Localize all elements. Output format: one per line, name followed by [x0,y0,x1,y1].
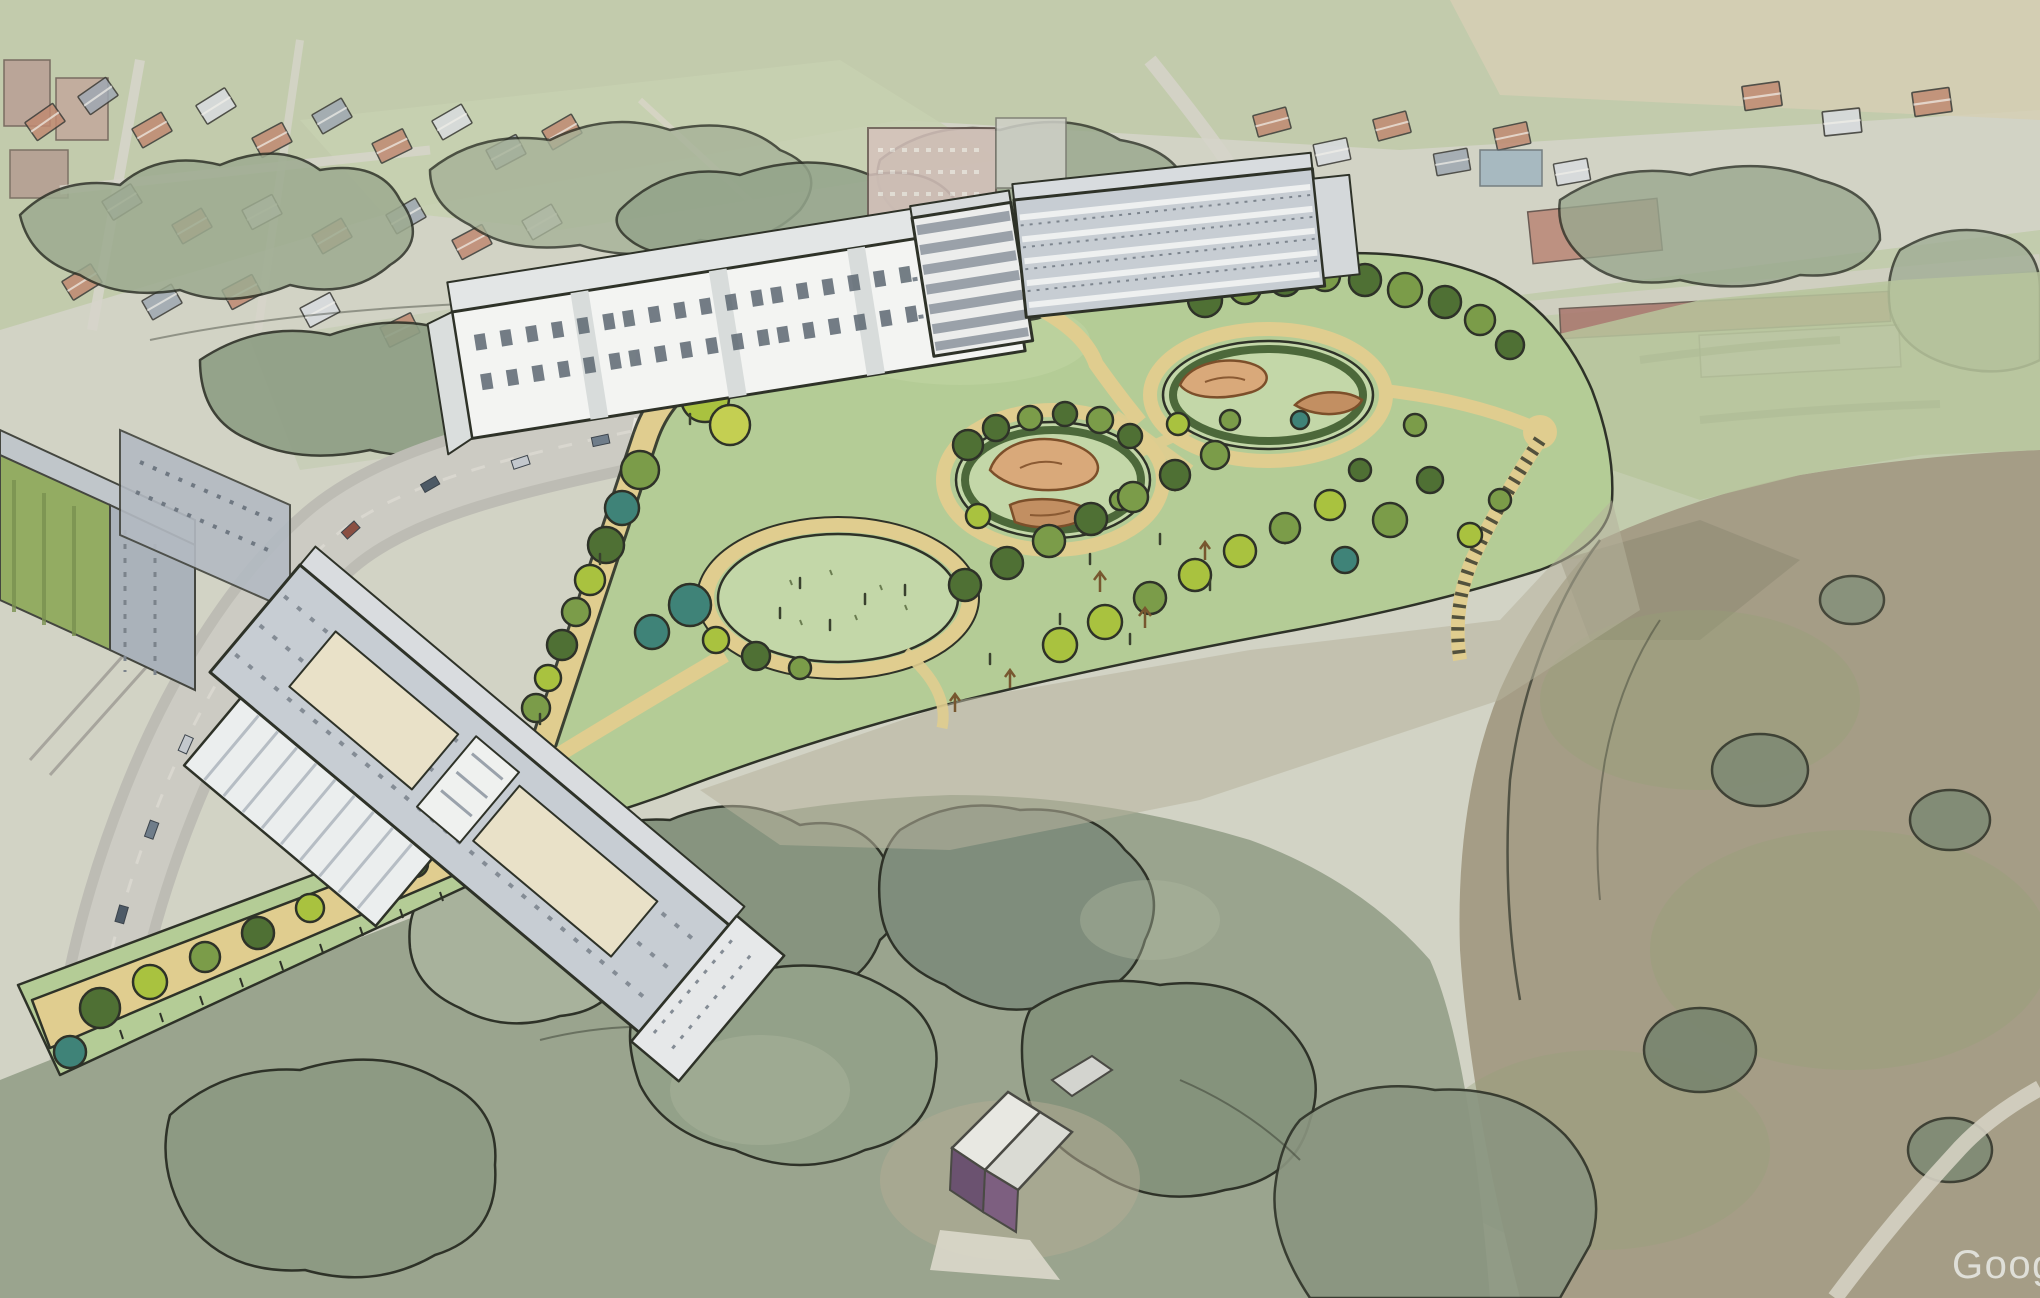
tree [535,665,561,691]
tree [1118,482,1148,512]
tree [54,1036,86,1068]
bush [1644,1008,1756,1092]
tree-mass [166,1060,496,1278]
blue-roof-building [1480,150,1542,186]
tree [1033,525,1065,557]
tree [1270,513,1300,543]
clearing [1080,880,1220,960]
bush [1712,734,1808,806]
tree [983,415,1009,441]
bush [1820,576,1884,624]
tree [703,627,729,653]
tree [588,527,624,563]
tree [1496,331,1524,359]
tree [635,615,669,649]
tree [1458,523,1482,547]
tree [1043,628,1077,662]
tree [190,942,220,972]
tree [1160,460,1190,490]
tree [562,598,590,626]
tree [1201,441,1229,469]
tree [1291,411,1309,429]
tree [1224,535,1256,567]
tree [1315,490,1345,520]
tree [547,630,577,660]
tree [1465,305,1495,335]
tree [133,965,167,999]
tree [1118,424,1142,448]
aerial-render: Google [0,0,2040,1298]
tree [966,504,990,528]
tree [1489,489,1511,511]
tree [1053,402,1077,426]
tree [949,569,981,601]
tree [1087,407,1113,433]
tree [1018,406,1042,430]
tree [953,430,983,460]
tree [1167,413,1189,435]
tree [1404,414,1426,436]
tree [242,917,274,949]
tree [1075,503,1107,535]
google-watermark: Google [1952,1243,2040,1287]
tree [1429,286,1461,318]
tree [1417,467,1443,493]
tree-mass [1559,166,1880,286]
playground-oval-east [1150,329,1386,461]
tree [742,642,770,670]
tree [1088,605,1122,639]
tree [991,547,1023,579]
tree [575,565,605,595]
tree [80,988,120,1028]
tree [1388,273,1422,307]
render-canvas: Google [0,0,2040,1298]
tree [605,491,639,525]
tree [669,584,711,626]
tree [710,405,750,445]
tree [789,657,811,679]
tree [1373,503,1407,537]
tree [1179,559,1211,591]
tree [522,694,550,722]
context-block [996,118,1066,188]
tree [621,451,659,489]
tree [1332,547,1358,573]
tree [296,894,324,922]
tree [1349,459,1371,481]
tree [1220,410,1240,430]
tree [1134,582,1166,614]
circular-lawn [697,517,979,679]
bush [1910,790,1990,850]
